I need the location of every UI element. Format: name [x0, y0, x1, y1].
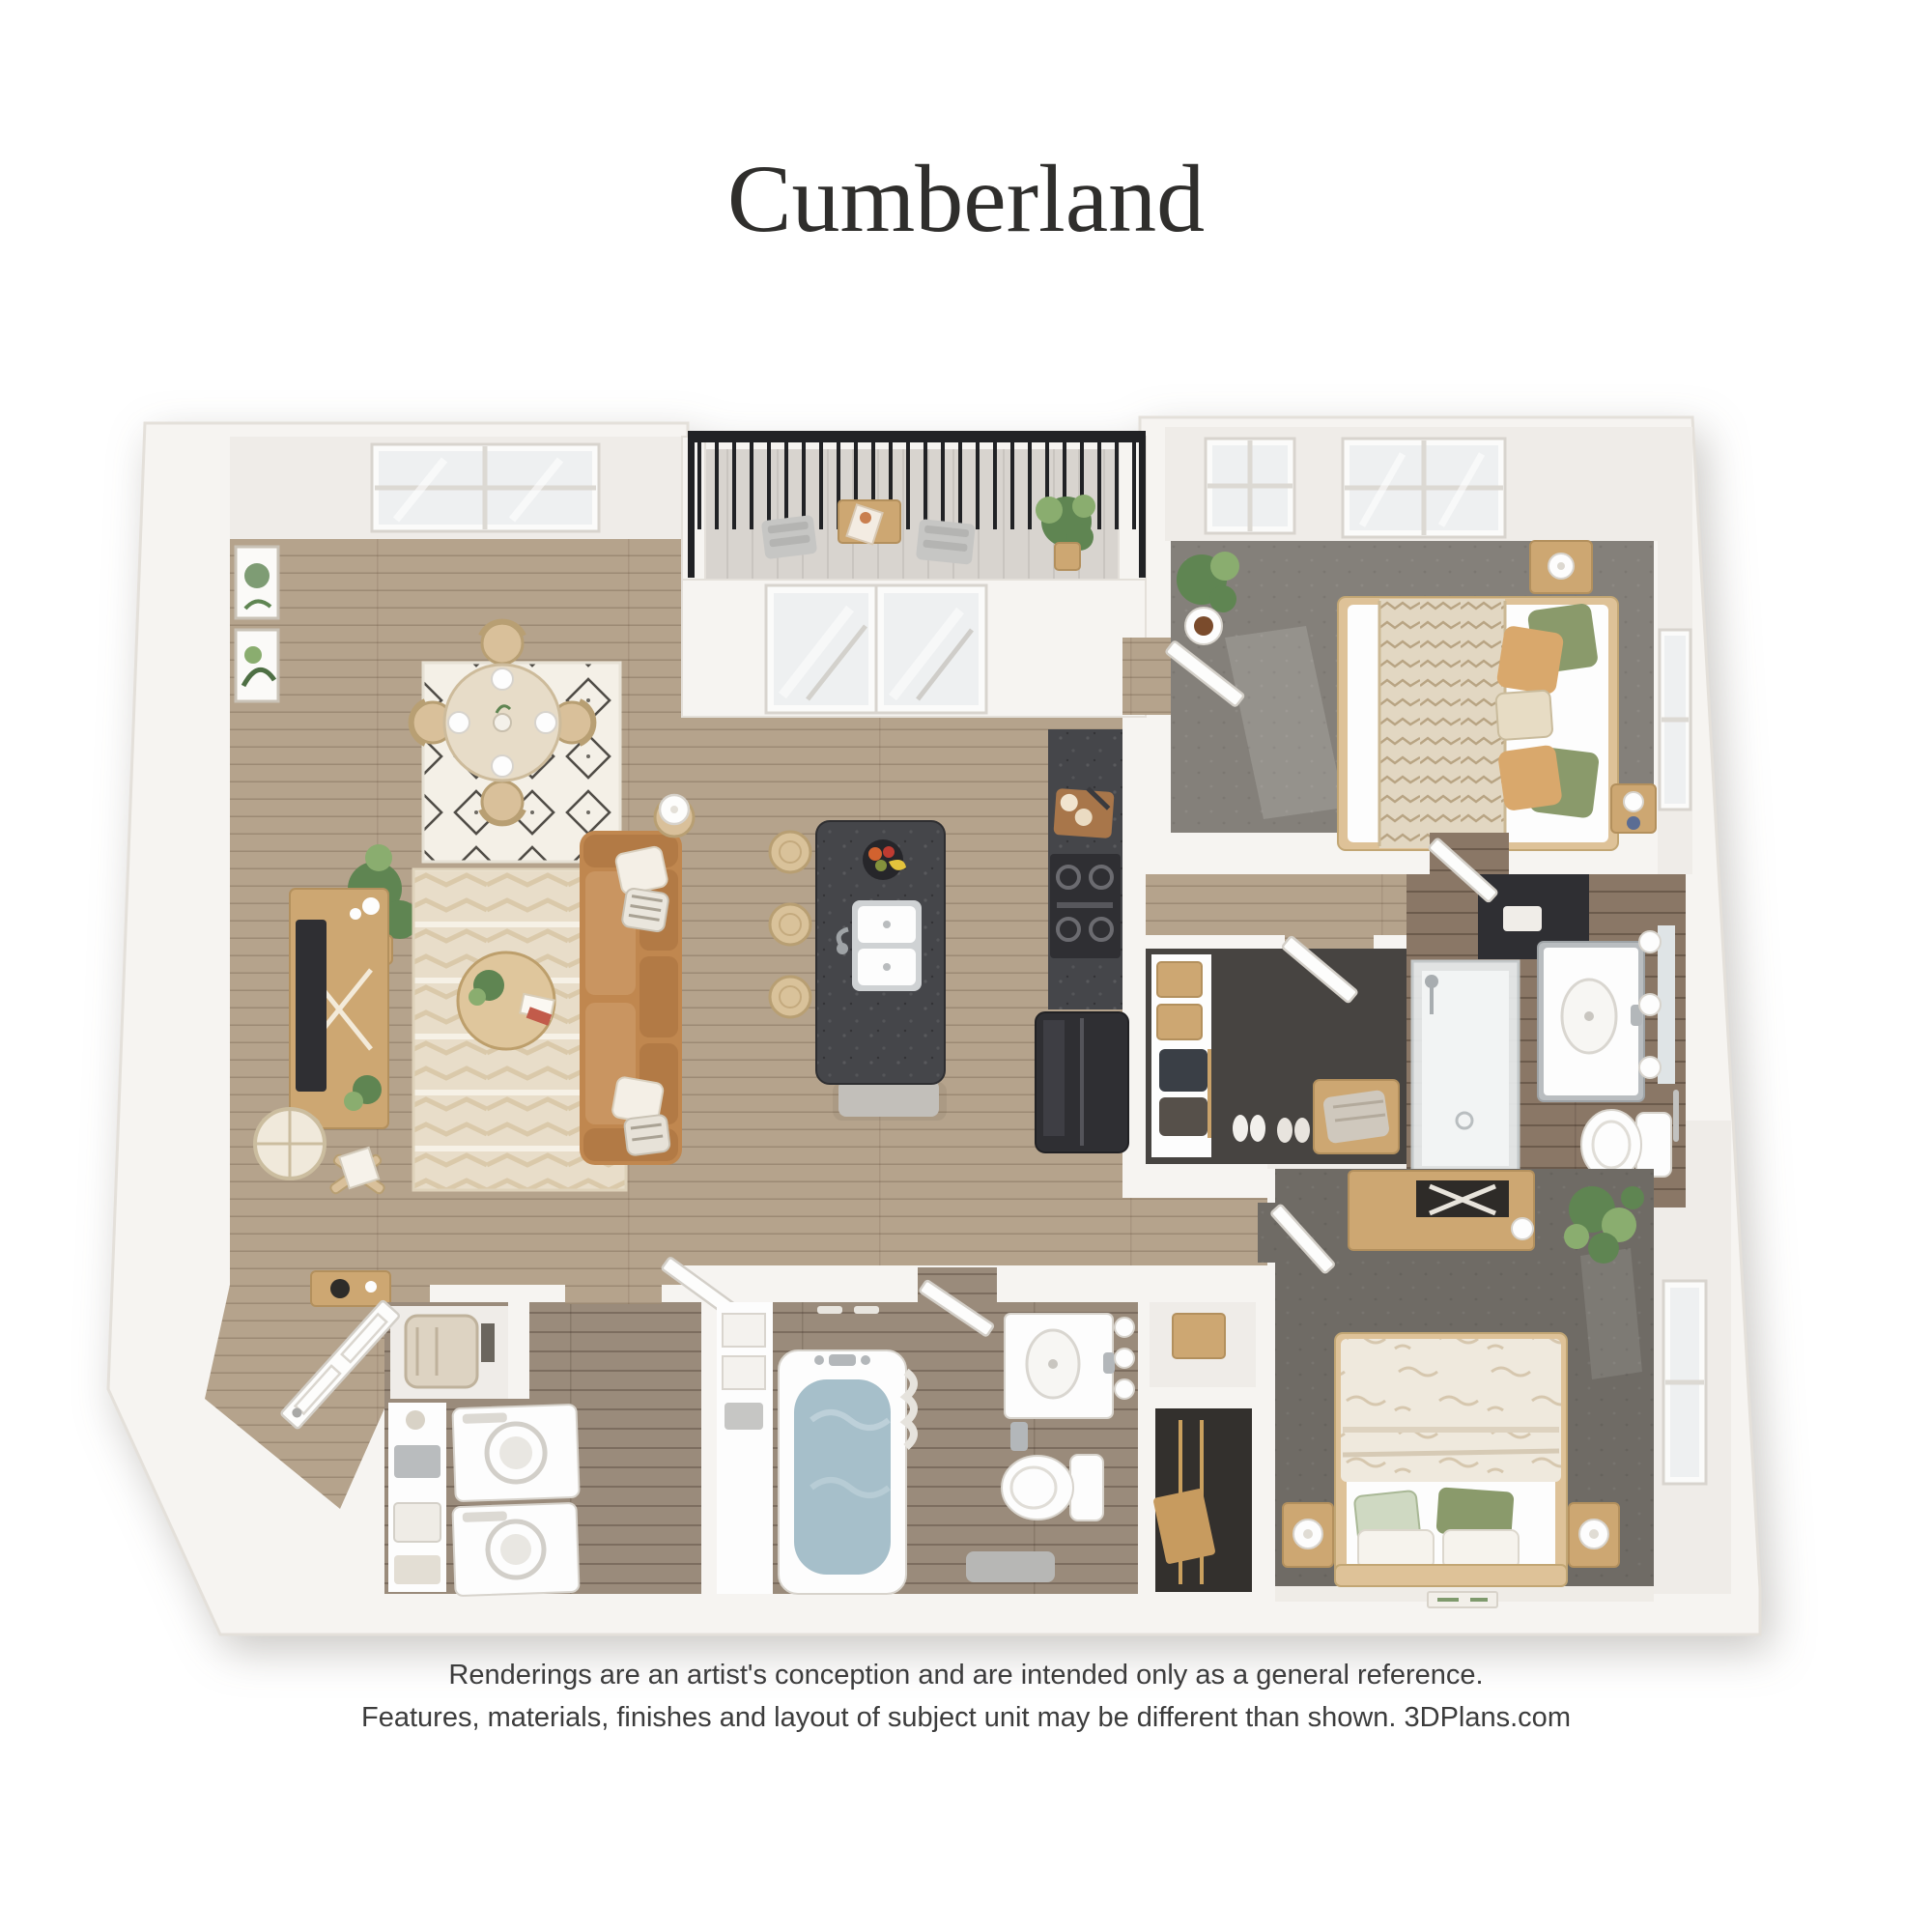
bathroom-secondary	[717, 1302, 1138, 1594]
balcony-table	[838, 500, 900, 544]
balcony-wall-sliding-doors	[682, 580, 1146, 717]
bed-secondary	[1335, 1333, 1567, 1586]
balcony-chair	[761, 515, 817, 559]
throw-pillow	[621, 888, 669, 932]
laundry-room	[384, 1302, 701, 1596]
washer	[452, 1405, 579, 1501]
pillow-tan	[1497, 744, 1563, 811]
bedroom-secondary	[1258, 1169, 1706, 1607]
bathroom-primary	[1406, 833, 1686, 1207]
tv-console	[290, 889, 388, 1128]
disclaimer-line-1: Renderings are an artist's conception an…	[0, 1654, 1932, 1696]
cutting-board	[1053, 784, 1114, 838]
towel-bar	[1673, 1090, 1679, 1142]
bedroom1-side-window	[1660, 630, 1690, 810]
sofa	[580, 831, 682, 1165]
nightstand	[1611, 784, 1656, 833]
laundry-door-opening	[565, 1281, 662, 1304]
bath2-toilet	[1002, 1455, 1103, 1520]
bedroom2-window	[1663, 1281, 1706, 1484]
headboard	[1335, 1565, 1567, 1586]
bedroom1-door-opening	[1122, 638, 1171, 715]
bed-comforter	[1341, 1339, 1561, 1482]
pillow-white	[1443, 1530, 1519, 1569]
bath-water	[794, 1379, 891, 1575]
dryer	[452, 1503, 579, 1596]
range-cooktop	[1050, 854, 1121, 958]
utility-closet	[390, 1306, 508, 1399]
bar-stool	[770, 832, 810, 872]
sliding-glass-door	[876, 585, 986, 713]
kitchen-island	[816, 821, 947, 1121]
disclaimer-line-2: Features, materials, finishes and layout…	[0, 1696, 1932, 1739]
bedroom1-window	[1206, 439, 1294, 533]
bedroom1-window	[1343, 439, 1505, 537]
bath1-mirror-sconces	[1639, 925, 1675, 1084]
nightstand	[1283, 1503, 1333, 1567]
walk-in-closet	[1146, 929, 1406, 1164]
hallway-floor	[682, 1198, 1267, 1265]
nightstand	[1530, 541, 1592, 593]
storage-box	[1173, 1314, 1225, 1358]
bath1-vanity	[1538, 942, 1644, 1101]
walk-in-shower	[1412, 961, 1519, 1176]
linen-shelves	[717, 1302, 773, 1594]
hall-nook	[1150, 1302, 1256, 1592]
bed-primary	[1338, 597, 1618, 850]
sconce-light	[1115, 1379, 1134, 1399]
sconce-light	[1115, 1349, 1134, 1368]
television	[296, 920, 327, 1092]
pillow-white	[1358, 1530, 1434, 1569]
nightstand	[1569, 1503, 1619, 1567]
closet-bench	[1314, 1080, 1399, 1153]
floor-book	[1428, 1592, 1497, 1607]
dining-chair	[481, 781, 524, 823]
pillow-accent	[1495, 690, 1552, 740]
dining-chair	[481, 622, 524, 664]
bar-stool	[770, 904, 810, 945]
balcony-chair	[916, 519, 976, 565]
sliding-glass-door	[766, 585, 876, 713]
bath-mat	[966, 1551, 1055, 1582]
paper-lantern-lamp	[255, 1109, 325, 1179]
disclaimer: Renderings are an artist's conception an…	[0, 1654, 1932, 1739]
dresser	[1349, 1171, 1534, 1250]
bathtub	[779, 1350, 914, 1594]
sconce-light	[1115, 1318, 1134, 1337]
pillow-tan	[1495, 625, 1564, 696]
throw-pillow	[624, 1114, 670, 1155]
coffee-table	[458, 952, 554, 1049]
dining-table	[444, 665, 560, 781]
dining-window	[372, 444, 599, 531]
entry-console-table	[311, 1271, 390, 1306]
suite-hall-floor	[1146, 874, 1406, 935]
laundry-shelf	[388, 1403, 446, 1592]
bed-throw-blanket	[1379, 599, 1505, 848]
kitchen-counter-run	[1036, 729, 1128, 1152]
bar-stool	[770, 977, 810, 1017]
floor-plan-rendering	[0, 0, 1932, 1932]
throw-pillow	[614, 845, 668, 895]
